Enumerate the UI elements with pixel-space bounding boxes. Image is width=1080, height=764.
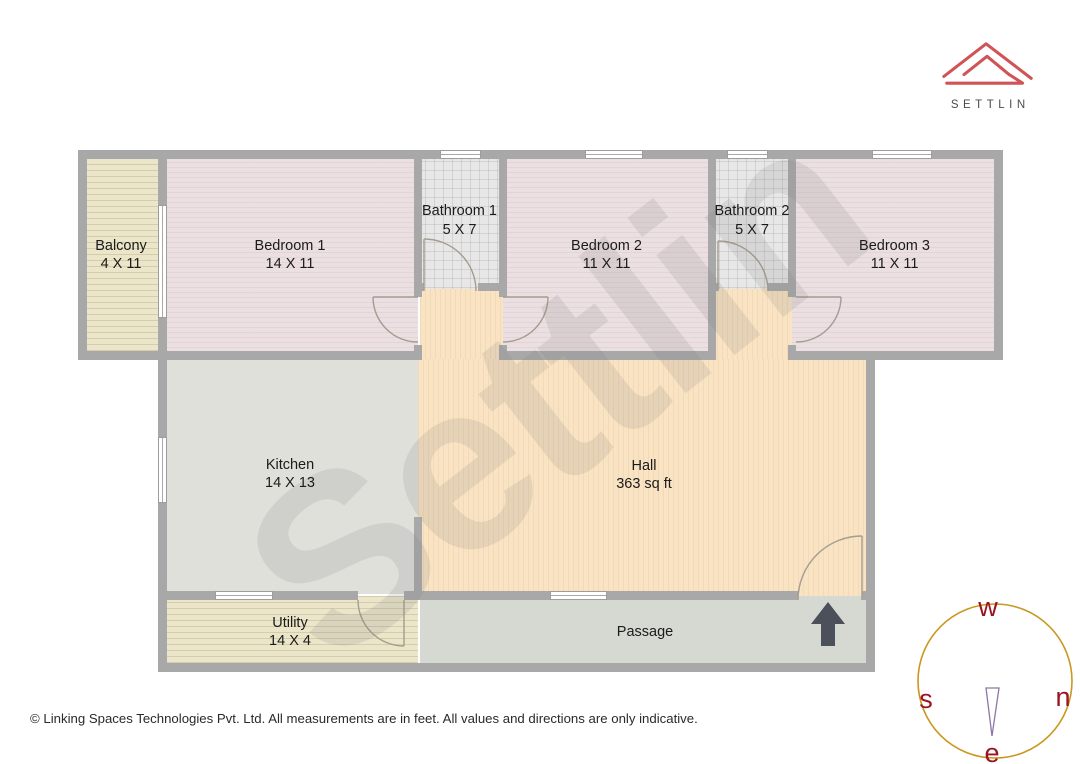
door-arc bbox=[503, 297, 548, 342]
entrance-arrow-icon bbox=[811, 602, 845, 646]
door-arc bbox=[424, 239, 476, 291]
settlin-house-icon bbox=[940, 36, 1036, 90]
settlin-logo: SETTLIN bbox=[933, 36, 1043, 111]
door-arc bbox=[358, 600, 404, 646]
compass-rose: w n s e bbox=[912, 582, 1080, 764]
door-arc bbox=[373, 297, 418, 342]
compass-needle bbox=[986, 688, 999, 736]
door-arc bbox=[718, 241, 768, 291]
compass-south: s bbox=[919, 684, 933, 714]
floor-plan-page: Settlin Balcony4 X 11 Bedroom 114 X 11 B… bbox=[0, 0, 1080, 764]
compass-ring bbox=[918, 604, 1072, 758]
door-arc bbox=[798, 536, 862, 600]
compass-north: n bbox=[1055, 682, 1070, 712]
door-arc bbox=[796, 297, 841, 342]
settlin-logo-text: SETTLIN bbox=[933, 99, 1043, 111]
compass-west: w bbox=[977, 592, 998, 622]
compass-east: e bbox=[984, 738, 999, 764]
copyright-note: © Linking Spaces Technologies Pvt. Ltd. … bbox=[30, 711, 698, 726]
